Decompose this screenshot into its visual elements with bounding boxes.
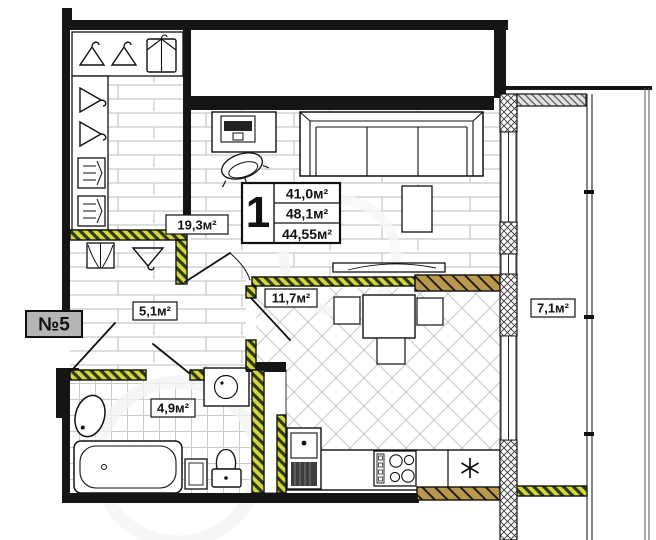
washing-machine (204, 368, 249, 406)
kitchen-area: 11,7м² (272, 291, 311, 306)
living-kitchen-wall (252, 277, 415, 286)
living-top-wall (191, 96, 494, 110)
tv-console (333, 263, 445, 272)
area-with-balcony: 48,1м² (286, 206, 329, 222)
area-reduced: 44,55м² (282, 226, 332, 242)
hallway-stub-wall (176, 240, 187, 284)
unit-number: №5 (38, 315, 70, 336)
room-area-label: 4,9м² (151, 399, 195, 417)
area-total: 41,0м² (286, 186, 329, 202)
drawer-icon (78, 158, 105, 188)
floor-plan-page: 1 41,0м² 48,1м² 44,55м² 19,3м² 5,1м² 11,… (0, 0, 656, 540)
monitor-icon (221, 116, 255, 142)
bath-cabinet (185, 459, 207, 489)
rooms-count: 1 (246, 188, 270, 237)
drawer-icon (78, 196, 105, 226)
top-wall (62, 20, 508, 30)
living-kitchen-masonry (415, 275, 500, 291)
stove (374, 451, 416, 486)
hallway-area: 5,1м² (139, 304, 172, 319)
kitchen-wall-lower (246, 340, 256, 370)
kitchen-wall-upper (246, 286, 256, 298)
shaft-wall (277, 415, 286, 493)
bottom-masonry (417, 487, 500, 500)
closet-nook-floor (108, 76, 183, 230)
bathtub (74, 441, 182, 493)
balcony-top-line (494, 86, 652, 90)
kitchen-sink (287, 428, 321, 489)
entrance-jamb (56, 368, 65, 418)
balcony-parapet (515, 486, 587, 496)
facade-wall (500, 94, 517, 540)
dining-table (363, 295, 415, 338)
bathroom-top-wall (70, 370, 146, 380)
bathroom-right-wall (252, 370, 264, 493)
left-wall-upper (62, 20, 70, 330)
unit-badge: №5 (26, 311, 82, 337)
dining-chair (334, 297, 360, 324)
sofa (300, 112, 483, 176)
wardrobe-icon (87, 243, 114, 268)
wall-tick (62, 8, 72, 22)
closet-wall (183, 30, 191, 234)
room-area-label: 19,3м² (166, 215, 228, 234)
room-area-label: 5,1м² (133, 302, 177, 320)
bottom-wall (62, 493, 419, 503)
bathroom-area: 4,9м² (157, 401, 190, 416)
balcony-area: 7,1м² (537, 301, 570, 316)
garment-bag-icon (147, 35, 176, 72)
floor-plan-canvas: 1 41,0м² 48,1м² 44,55м² 19,3м² 5,1м² 11,… (0, 0, 656, 540)
room-area-label: 11,7м² (265, 289, 317, 307)
living-room-area: 19,3м² (177, 218, 217, 233)
dining-chair (377, 338, 405, 364)
bathroom-top-wall (190, 370, 204, 380)
cabinet (402, 186, 432, 232)
dining-chair (417, 298, 443, 325)
room-area-label: 7,1м² (531, 299, 575, 317)
summary-box: 1 41,0м² 48,1м² 44,55м² (242, 183, 340, 243)
